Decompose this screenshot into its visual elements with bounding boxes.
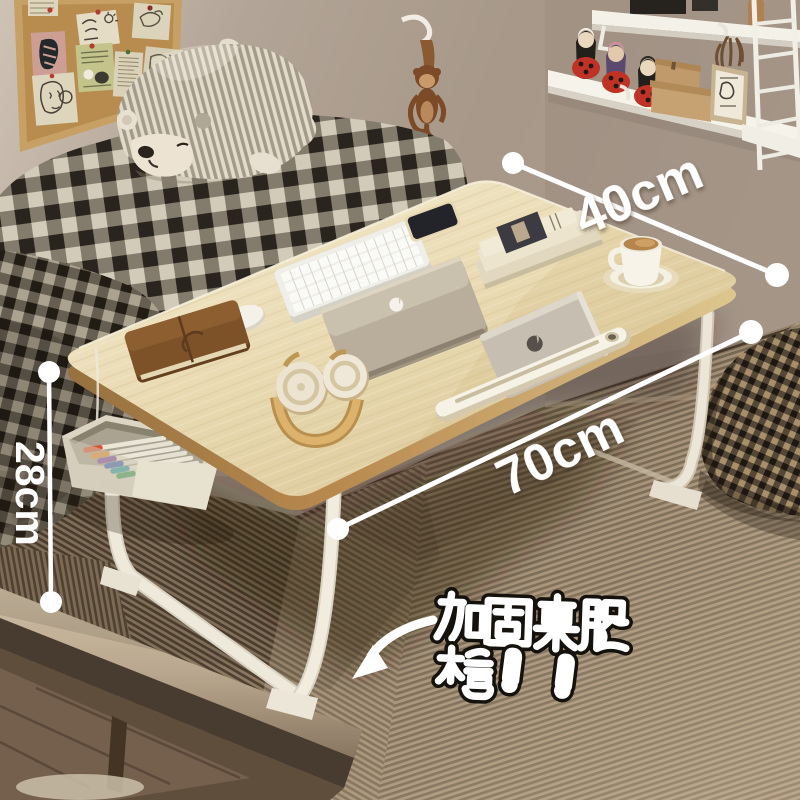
svg-text:28cm: 28cm: [7, 441, 53, 546]
